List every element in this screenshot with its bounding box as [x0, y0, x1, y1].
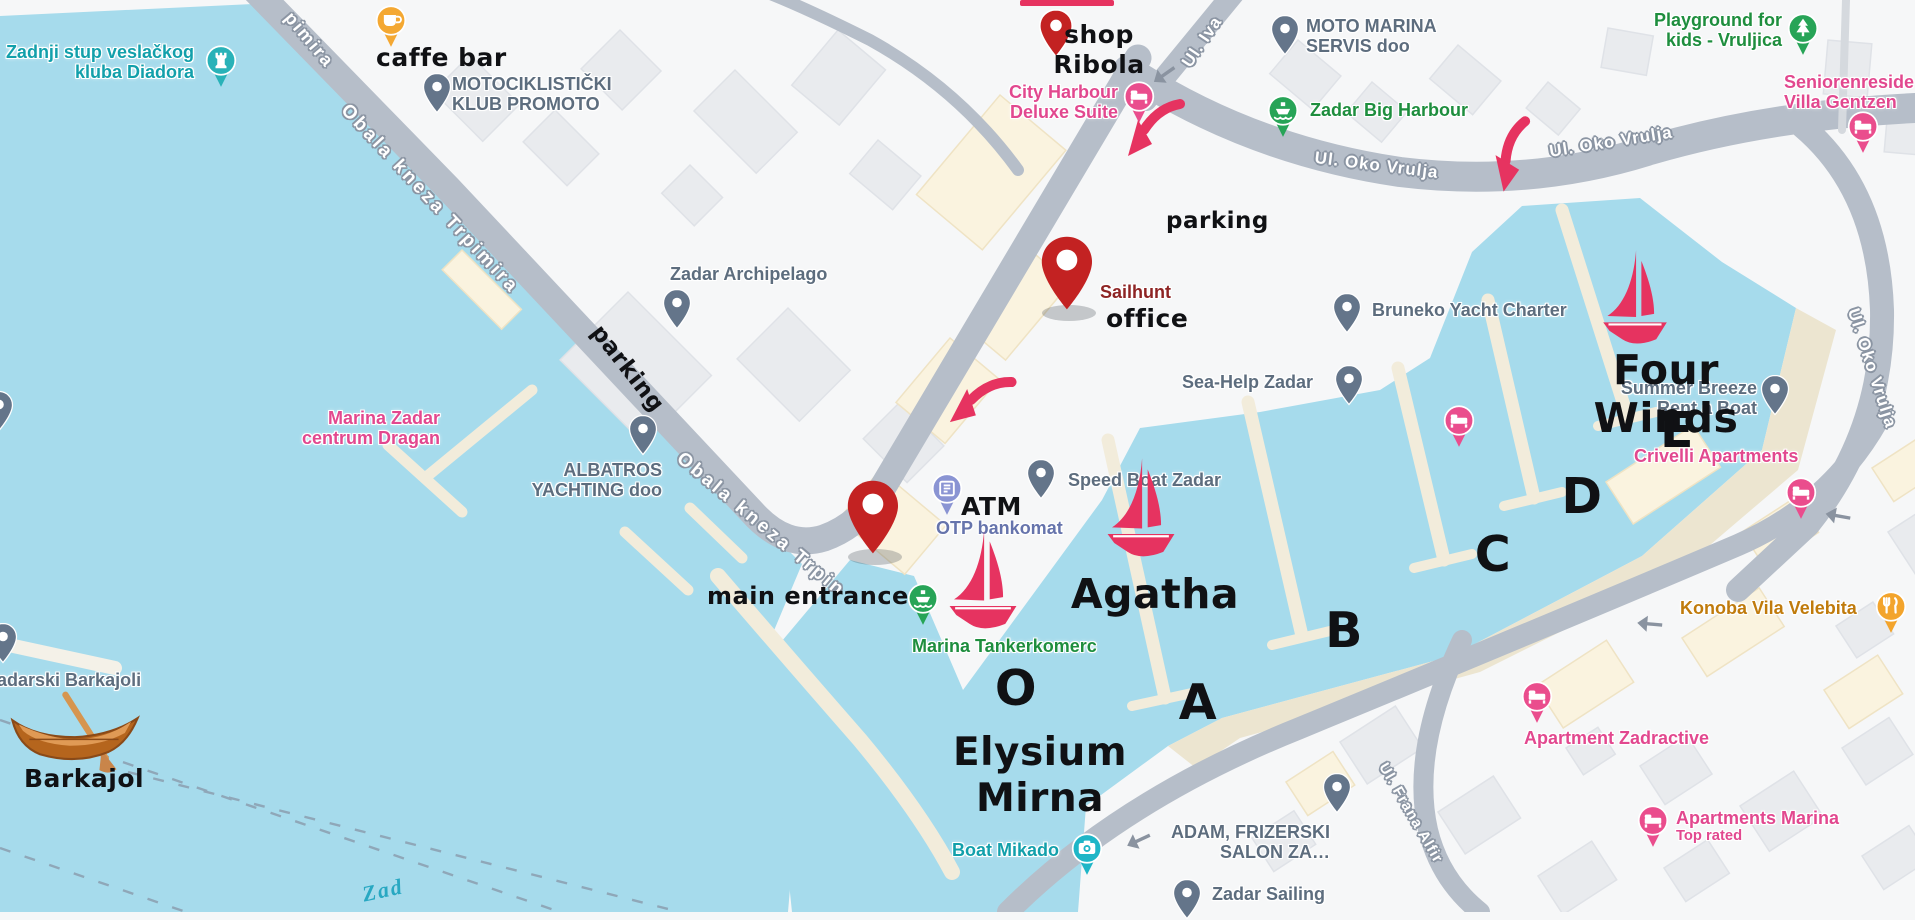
poi-marina-zadar-centrum-dragan-marker[interactable]: [1442, 404, 1476, 448]
poi-apartments-marina-marker[interactable]: [1636, 804, 1670, 848]
poi-albatros-yachting-marker[interactable]: [628, 414, 658, 456]
poi-sea-help-zadar-label[interactable]: Sea-Help Zadar: [1182, 372, 1313, 392]
poi-city-harbour-deluxe-suite-label[interactable]: City Harbour Deluxe Suite: [1009, 82, 1118, 123]
poi-city-harbour-deluxe-suite-marker[interactable]: [1122, 80, 1156, 124]
poi-seniorenresidenz-villa-gentzen-marker[interactable]: [1846, 110, 1880, 154]
poi-zadarski-barkajoli-marker[interactable]: [0, 622, 18, 664]
poi-zadar-big-harbour-label[interactable]: Zadar Big Harbour: [1310, 100, 1468, 120]
poi-apartments-marina-label[interactable]: Apartments MarinaTop rated: [1676, 808, 1839, 845]
poi-sea-help-zadar-marker[interactable]: [1334, 364, 1364, 406]
poi-moto-marina-servis-marker[interactable]: [1270, 14, 1300, 56]
poi-otp-bankomat-label[interactable]: OTP bankomat: [936, 518, 1063, 538]
poi-zadarski-barkajoli-label[interactable]: Zadarski Barkajoli: [0, 670, 141, 690]
poi-moto-marina-servis-label[interactable]: MOTO MARINA SERVIS doo: [1306, 16, 1437, 57]
poi-albatros-yachting-label[interactable]: ALBATROS YACHTING doo: [532, 460, 662, 501]
poi-seniorenresidenz-villa-gentzen-label[interactable]: Seniorenreside Villa Gentzen: [1784, 72, 1914, 113]
poi-zadnji-stup-diadora-marker[interactable]: [204, 44, 238, 88]
poi-sailhunt-office-marker[interactable]: [1038, 234, 1096, 322]
poi-zadar-archipelago-marker[interactable]: [662, 288, 692, 330]
poi-motociklisticki-klub-promoto-marker[interactable]: [422, 72, 452, 114]
map-canvas[interactable]: [0, 0, 1915, 912]
poi-marina-tankerkomerc-label[interactable]: Marina Tankerkomerc: [912, 636, 1097, 656]
poi-crivelli-apartments-label[interactable]: Crivelli Apartments: [1634, 446, 1798, 466]
poi-playground-vruljica-label[interactable]: Playground for kids - Vruljica: [1654, 10, 1782, 51]
poi-adam-frizerski-salon-marker[interactable]: [1322, 772, 1352, 814]
poi-marina-tankerkomerc-marker[interactable]: [906, 582, 940, 626]
poi-bruneko-yacht-charter-label[interactable]: Bruneko Yacht Charter: [1372, 300, 1567, 320]
poi-apartment-zadractive-marker[interactable]: [1520, 680, 1554, 724]
poi-motociklisticki-klub-promoto-label[interactable]: MOTOCIKLISTIČKI KLUB PROMOTO: [452, 74, 612, 115]
poi-zadar-big-harbour-marker[interactable]: [1266, 94, 1300, 138]
poi-zadar-sailing-marker[interactable]: [1172, 878, 1202, 920]
poi-konoba-vila-velebita-marker[interactable]: [1874, 590, 1908, 634]
poi-marina-zadar-centrum-dragan-label[interactable]: Marina Zadar centrum Dragan: [302, 408, 440, 449]
poi-summer-breeze-rent-a-boat-marker[interactable]: [1760, 374, 1790, 416]
poi-otp-bankomat-marker[interactable]: [930, 472, 964, 516]
poi-speed-boat-zadar-label[interactable]: Speed Boat Zadar: [1068, 470, 1221, 490]
poi-bruneko-yacht-charter-marker[interactable]: [1332, 292, 1362, 334]
poi-shop-ribola-marker-marker[interactable]: [1038, 8, 1074, 58]
poi-boat-mikado-label[interactable]: Boat Mikado: [952, 840, 1059, 860]
poi-zadnji-stup-diadora-label[interactable]: Zadnji stup veslačkog kluba Diadora: [6, 42, 194, 83]
poi-adam-frizerski-salon-label[interactable]: ADAM, FRIZERSKI SALON ZA…: [1171, 822, 1330, 863]
poi-speed-boat-zadar-marker[interactable]: [1026, 458, 1056, 500]
poi-main-entrance-marker-marker[interactable]: [844, 478, 902, 566]
poi-boat-mikado-marker[interactable]: [1070, 832, 1104, 876]
poi-apartment-zadractive-label[interactable]: Apartment Zadractive: [1524, 728, 1709, 748]
poi-playground-vruljica-marker[interactable]: [1786, 12, 1820, 56]
poi-summer-breeze-rent-a-boat-label[interactable]: Summer Breeze Rent a Boat: [1621, 378, 1757, 419]
poi-zadar-sailing-label[interactable]: Zadar Sailing: [1212, 884, 1325, 904]
poi-zadar-archipelago-label[interactable]: Zadar Archipelago: [670, 264, 827, 284]
poi-crivelli-apartments-marker[interactable]: [1784, 476, 1818, 520]
poi-caffe-bar-marker-marker[interactable]: [374, 4, 408, 48]
poi-edge-pin-west-marker[interactable]: [0, 390, 14, 432]
poi-konoba-vila-velebita-label[interactable]: Konoba Vila Velebita: [1680, 598, 1857, 618]
poi-sailhunt-office-label[interactable]: Sailhunt: [1100, 282, 1171, 302]
map-screenshot: { "map": { "colors": { "water": "#a6dbec…: [0, 0, 1915, 912]
poi-apartments-marina-sublabel: Top rated: [1676, 828, 1839, 845]
